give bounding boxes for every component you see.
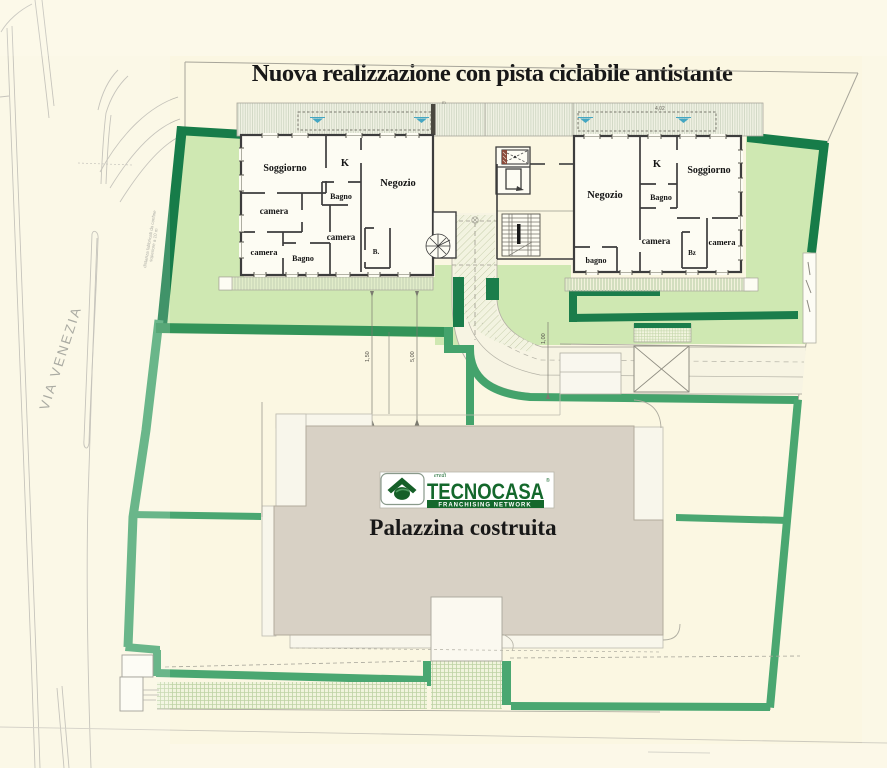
svg-text:camera: camera	[642, 236, 671, 246]
svg-text:4,02: 4,02	[655, 106, 665, 112]
svg-text:1,50: 1,50	[365, 351, 371, 362]
svg-text:Negozio: Negozio	[380, 178, 416, 189]
svg-text:Soggiorno: Soggiorno	[687, 165, 730, 176]
svg-text:Palazzina costruita: Palazzina costruita	[369, 515, 557, 540]
svg-text:1,00: 1,00	[541, 333, 547, 344]
svg-text:FRANCHISING NETWORK: FRANCHISING NETWORK	[438, 503, 531, 509]
svg-text:camera: camera	[251, 247, 279, 257]
svg-text:camera: camera	[327, 232, 356, 242]
svg-text:Bagno: Bagno	[650, 193, 672, 202]
svg-text:Soggiorno: Soggiorno	[263, 163, 306, 174]
svg-text:K: K	[341, 158, 350, 169]
svg-text:bagno: bagno	[586, 256, 607, 265]
svg-text:eredi: eredi	[434, 473, 446, 479]
svg-text:camera: camera	[709, 237, 737, 247]
svg-text:Negozio: Negozio	[587, 190, 623, 201]
svg-text:5,00: 5,00	[410, 351, 416, 362]
svg-text:Bagno: Bagno	[292, 254, 314, 263]
svg-text:Bz: Bz	[688, 249, 696, 257]
svg-text:m: m	[442, 100, 446, 105]
svg-text:Bagno: Bagno	[330, 192, 352, 201]
svg-text:B.: B.	[373, 248, 380, 256]
svg-text:®: ®	[546, 477, 550, 484]
svg-text:camera: camera	[260, 206, 289, 216]
svg-text:K: K	[653, 159, 662, 170]
